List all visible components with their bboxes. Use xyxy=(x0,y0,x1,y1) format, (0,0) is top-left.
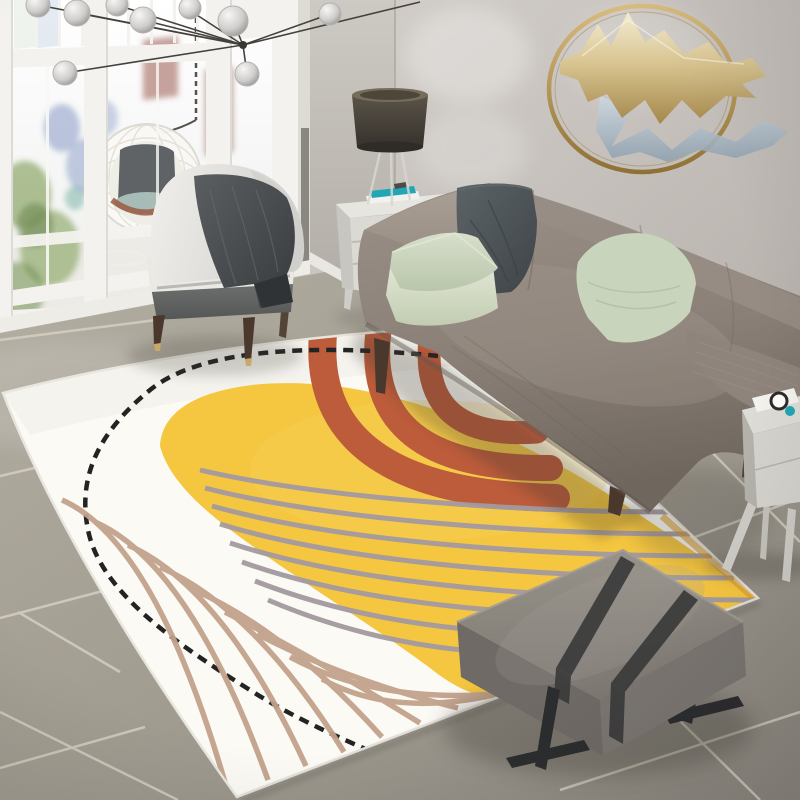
vignette-overlay xyxy=(0,0,800,800)
living-room-photo xyxy=(0,0,800,800)
scene-canvas xyxy=(0,0,800,800)
